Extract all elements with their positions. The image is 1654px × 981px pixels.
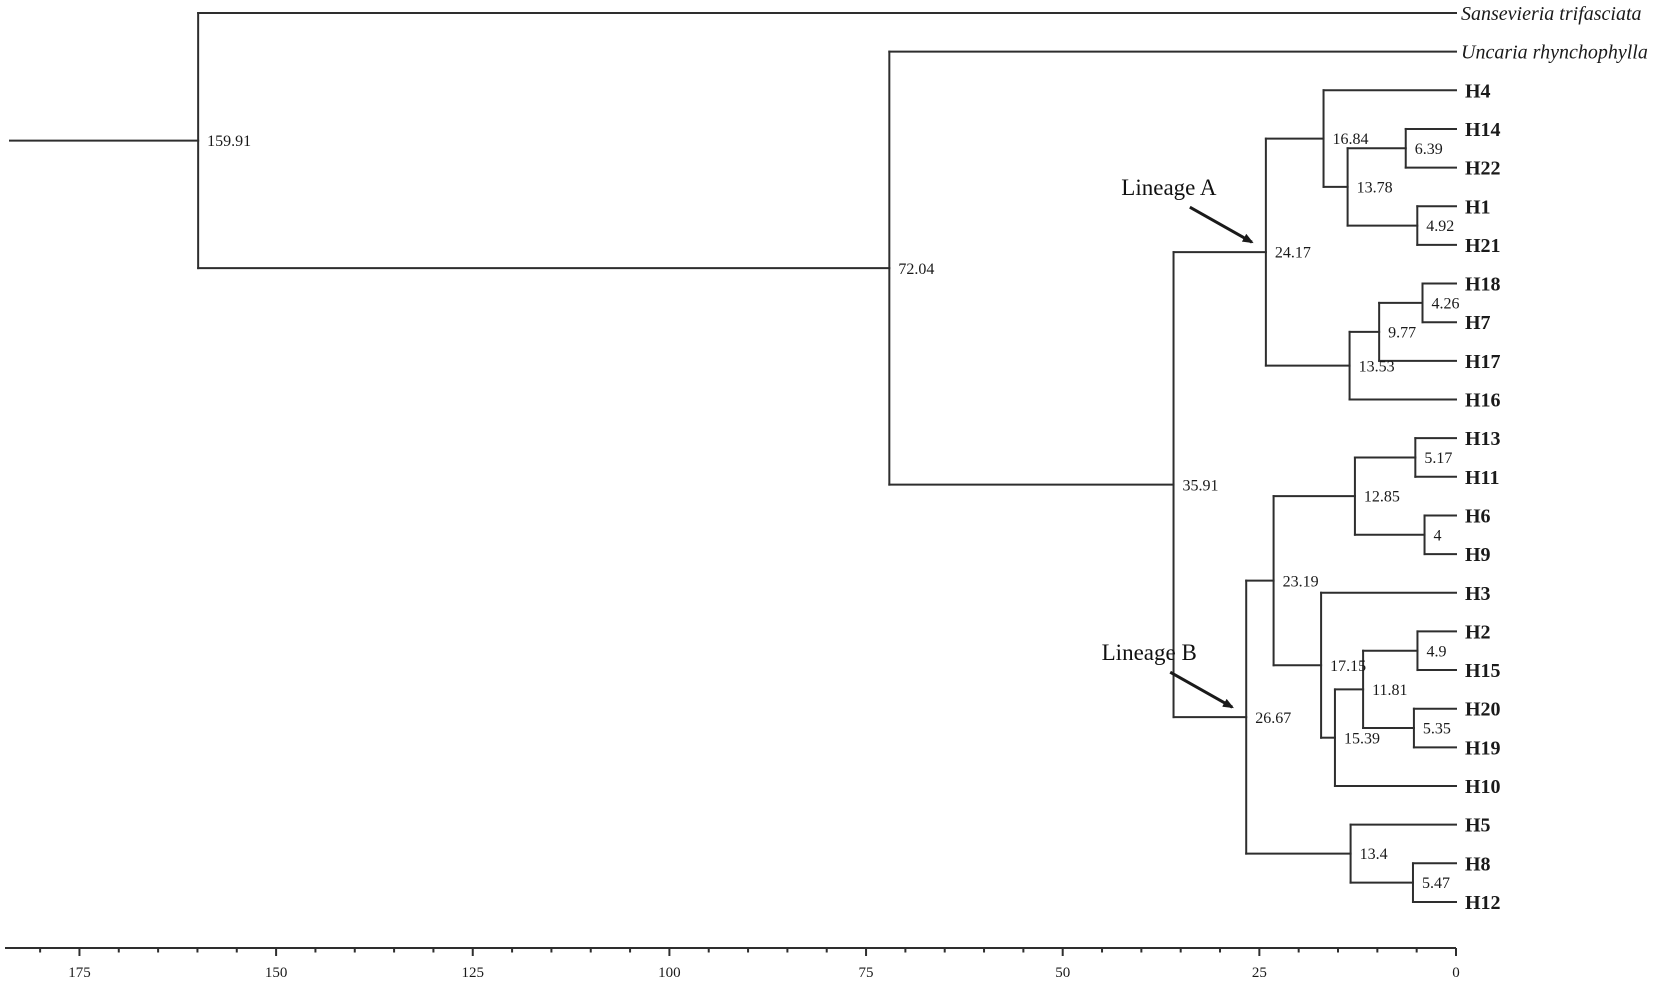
node-age-label: 24.17 (1275, 245, 1311, 262)
tip-label-h16: H16 (1465, 390, 1501, 412)
lineage-b-label: Lineage B (1102, 640, 1197, 666)
node-age-label: 26.67 (1255, 710, 1291, 727)
axis-tick-label: 125 (462, 965, 485, 981)
node-age-label: 6.39 (1415, 141, 1443, 158)
tip-label-h18: H18 (1465, 274, 1501, 296)
tip-label-h15: H15 (1465, 660, 1501, 682)
node-age-label: 4.9 (1426, 643, 1446, 660)
node-age-label: 5.35 (1423, 721, 1451, 738)
node-age-label: 4 (1434, 527, 1442, 544)
tip-label-h2: H2 (1465, 621, 1491, 643)
node-age-label: 16.84 (1333, 131, 1369, 148)
node-age-label: 159.91 (207, 133, 251, 150)
axis-tick-label: 50 (1055, 965, 1070, 981)
node-age-label: 5.17 (1424, 450, 1452, 467)
lineage-arrow (1170, 672, 1232, 707)
node-age-label: 4.92 (1426, 218, 1454, 235)
node-age-label: 13.78 (1357, 180, 1393, 197)
tip-label-h19: H19 (1465, 737, 1501, 759)
tip-label-h20: H20 (1465, 699, 1501, 721)
node-age-label: 12.85 (1364, 489, 1400, 506)
node-age-label: 13.4 (1360, 846, 1388, 863)
time-axis: 1751501251007550250 (5, 948, 1460, 981)
tip-label-h17: H17 (1465, 351, 1501, 373)
node-age-label: 23.19 (1283, 573, 1319, 590)
axis-tick-label: 100 (658, 965, 681, 981)
labels-layer: Sansevieria trifasciataUncaria rhynchoph… (207, 3, 1648, 914)
axis-tick-label: 175 (68, 965, 91, 981)
tree-canvas: 1751501251007550250Sansevieria trifascia… (0, 0, 1654, 981)
axis-tick-label: 25 (1252, 965, 1267, 981)
axis-tick-label: 0 (1452, 965, 1460, 981)
tip-label-h10: H10 (1465, 776, 1501, 798)
node-age-label: 4.26 (1431, 295, 1459, 312)
node-age-label: 9.77 (1388, 324, 1416, 341)
tip-label-h5: H5 (1465, 815, 1491, 837)
tip-label-h6: H6 (1465, 505, 1491, 527)
axis-tick-label: 75 (859, 965, 874, 981)
tip-label-h1: H1 (1465, 196, 1491, 218)
node-age-label: 15.39 (1344, 730, 1380, 747)
tip-label-h14: H14 (1465, 119, 1501, 141)
tip-label-h4: H4 (1465, 80, 1491, 102)
lineage-arrow (1190, 207, 1252, 242)
phylogenetic-tree-figure: 1751501251007550250Sansevieria trifascia… (0, 0, 1654, 981)
tip-label-uncaria-rhynchophylla: Uncaria rhynchophylla (1461, 42, 1648, 64)
tip-label-h9: H9 (1465, 544, 1491, 566)
tip-label-h8: H8 (1465, 853, 1491, 875)
node-age-label: 13.53 (1359, 358, 1395, 375)
axis-tick-label: 150 (265, 965, 288, 981)
node-age-label: 35.91 (1183, 477, 1219, 494)
tip-label-sansevieria-trifasciata: Sansevieria trifasciata (1461, 3, 1642, 25)
lineage-a-label: Lineage A (1121, 175, 1216, 201)
node-age-label: 17.15 (1330, 658, 1366, 675)
tip-label-h12: H12 (1465, 892, 1501, 914)
tip-label-h22: H22 (1465, 158, 1501, 180)
tip-label-h21: H21 (1465, 235, 1501, 257)
tip-label-h7: H7 (1465, 312, 1491, 334)
tip-label-h3: H3 (1465, 583, 1491, 605)
tip-label-h13: H13 (1465, 428, 1501, 450)
annotation-arrows-layer (1170, 207, 1252, 707)
node-age-label: 11.81 (1372, 682, 1407, 699)
tip-label-h11: H11 (1465, 467, 1499, 489)
node-age-label: 5.47 (1422, 875, 1450, 892)
node-age-label: 72.04 (898, 261, 934, 278)
